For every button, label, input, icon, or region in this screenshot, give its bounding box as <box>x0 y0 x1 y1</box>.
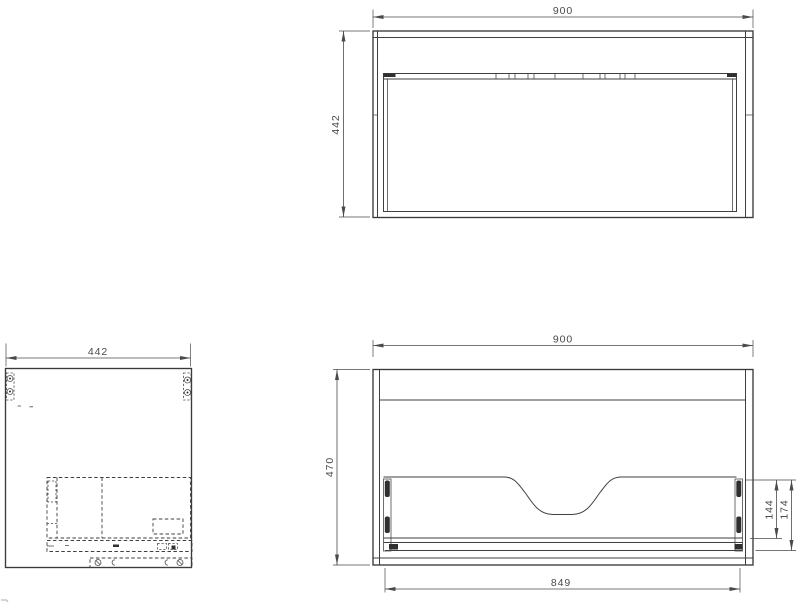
fitting-marks <box>18 406 34 407</box>
corner-bracket-left <box>384 74 396 78</box>
dim-label-drawer-front-height: 144 <box>764 499 776 519</box>
technical-drawing-canvas: 900 442 442 <box>0 0 800 608</box>
dim-label-drawer-total-height: 174 <box>779 499 791 519</box>
slide-rail-hidden <box>90 558 192 568</box>
drawer-back-cutout-path <box>384 477 737 515</box>
slide-foot <box>389 544 398 550</box>
drawer-slide-left <box>384 479 399 551</box>
dim-label-front-width: 900 <box>553 334 573 346</box>
clip-mark <box>112 560 115 565</box>
slide-foot <box>735 544 743 550</box>
dim-label-front-height: 470 <box>324 457 336 477</box>
drawer-bottom-rail-hidden <box>47 541 192 552</box>
drawer-hidden-outline <box>47 478 191 539</box>
top-view: 900 442 <box>330 5 753 218</box>
dim-label-side-depth: 442 <box>88 346 108 358</box>
clip-mark <box>165 560 168 565</box>
corner-bracket-right <box>727 74 737 78</box>
siphon-cutout-hidden <box>153 519 183 534</box>
slide-clip-marks <box>496 74 635 80</box>
drawer-front-profile <box>48 481 56 502</box>
top-view-outline <box>373 31 753 218</box>
drawer-bottom-lines <box>384 538 743 543</box>
dim-label-top-depth: 442 <box>330 114 342 134</box>
drawer-slide-right <box>735 479 743 551</box>
dim-label-inner-width: 849 <box>551 577 571 589</box>
front-view-outline <box>373 370 753 566</box>
drawing-page: 900 442 442 <box>0 0 800 608</box>
top-view-carcass <box>384 74 737 212</box>
wall-bracket-left <box>7 373 15 400</box>
dim-label-top-width: 900 <box>553 5 573 17</box>
extension-lines-front-height <box>333 370 370 566</box>
scan-artifact <box>1 600 8 602</box>
side-view: 442 <box>1 344 192 603</box>
wall-bracket-right <box>184 373 192 400</box>
front-view: 900 470 849 144 174 <box>324 334 796 593</box>
